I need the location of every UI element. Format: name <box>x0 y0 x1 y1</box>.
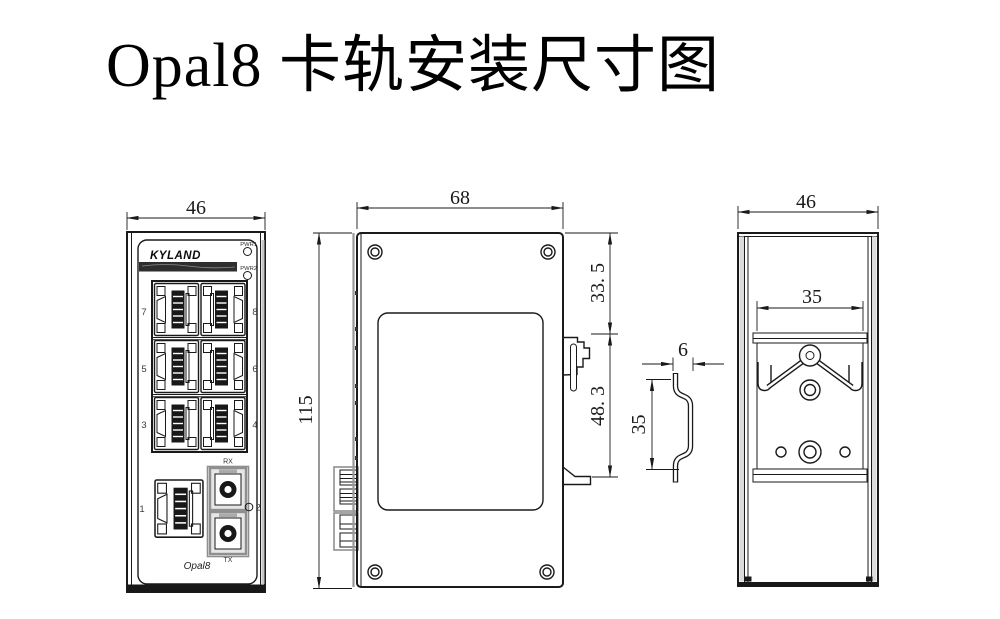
rear-view: 46 35 <box>738 191 878 587</box>
port-label-4: 4 <box>252 420 257 431</box>
port-label-3: 3 <box>141 420 146 431</box>
rj45-port-grid <box>152 281 247 452</box>
led-label-pwr2: PWR2 <box>240 266 257 272</box>
front-dark-stripe <box>139 262 237 272</box>
model-label: Opal8 <box>184 561 211 572</box>
side-body <box>357 233 563 587</box>
port-label-8: 8 <box>252 307 257 318</box>
rear-bottom-band <box>739 582 878 587</box>
dim-text-rear-width: 46 <box>796 191 816 213</box>
brand-logo: KYLAND <box>150 250 201 262</box>
rj45-port-5 <box>155 341 199 393</box>
dimension-drawing: 46 KYLAND PWR1 PWR2 <box>0 0 1000 619</box>
front-edge-shading <box>262 240 265 584</box>
dim-clip-span: 48. 3 <box>587 334 618 477</box>
rj45-port-7 <box>155 284 199 336</box>
rj45-port-8 <box>201 284 245 336</box>
rail-profile-outline <box>676 374 691 483</box>
dim-rail-profile-width: 35 <box>628 380 679 470</box>
port-label-7: 7 <box>141 307 146 318</box>
dim-text-rail-top-offset: 33. 5 <box>587 263 609 303</box>
sc-connector-rx <box>210 468 246 510</box>
dim-text-clip-span: 48. 3 <box>587 386 609 426</box>
port-label-6: 6 <box>252 364 257 375</box>
rj45-port-4 <box>201 398 245 450</box>
fiber-label-tx: TX <box>224 557 233 564</box>
led-pwr2 <box>244 272 252 280</box>
screw-hole <box>800 380 820 400</box>
fiber-label-rx: RX <box>223 459 233 466</box>
dim-text-front-width: 46 <box>186 197 206 219</box>
sc-connector-tx <box>210 512 246 554</box>
screw-hole <box>799 441 821 463</box>
led-pwr1 <box>244 248 252 256</box>
dim-text-rail-profile-width: 35 <box>628 415 650 435</box>
dim-side-height: 115 <box>295 233 352 589</box>
side-view: 68 115 33. 5 48. 3 <box>295 187 618 589</box>
dim-text-rear-rail-width: 35 <box>802 286 822 308</box>
rj45-port-6 <box>201 341 245 393</box>
rj45-port-1 <box>155 480 203 537</box>
screw-hole <box>540 565 554 579</box>
dim-rear-rail-width: 35 <box>757 286 863 331</box>
dim-text-side-height: 115 <box>295 395 317 424</box>
screw-hole <box>368 245 382 259</box>
front-view: 46 KYLAND PWR1 PWR2 <box>127 197 265 592</box>
spring-loop-hole <box>806 352 814 360</box>
dim-front-width: 46 <box>127 197 265 230</box>
side-recessed-panel <box>378 313 543 510</box>
dim-text-side-width: 68 <box>450 187 470 209</box>
rail-profile-view: 6 35 <box>628 339 724 482</box>
dim-text-rail-depth: 6 <box>678 339 688 361</box>
screw-hole <box>368 565 382 579</box>
fiber-port-block: RX TX <box>208 459 249 565</box>
front-bottom-band <box>127 585 265 593</box>
port-label-2: 2 <box>256 503 261 514</box>
dim-rear-width: 46 <box>738 191 878 229</box>
dim-rail-top-offset: 33. 5 <box>565 233 618 334</box>
dim-side-width: 68 <box>357 187 563 229</box>
port-label-1: 1 <box>139 504 144 515</box>
led-label-pwr1: PWR1 <box>240 242 257 248</box>
port-label-5: 5 <box>141 364 146 375</box>
screw-hole <box>541 245 555 259</box>
drawing-page: Opal8 卡轨安装尺寸图 <box>0 0 1000 619</box>
rj45-port-3 <box>155 398 199 450</box>
dim-rail-depth: 6 <box>642 339 724 371</box>
